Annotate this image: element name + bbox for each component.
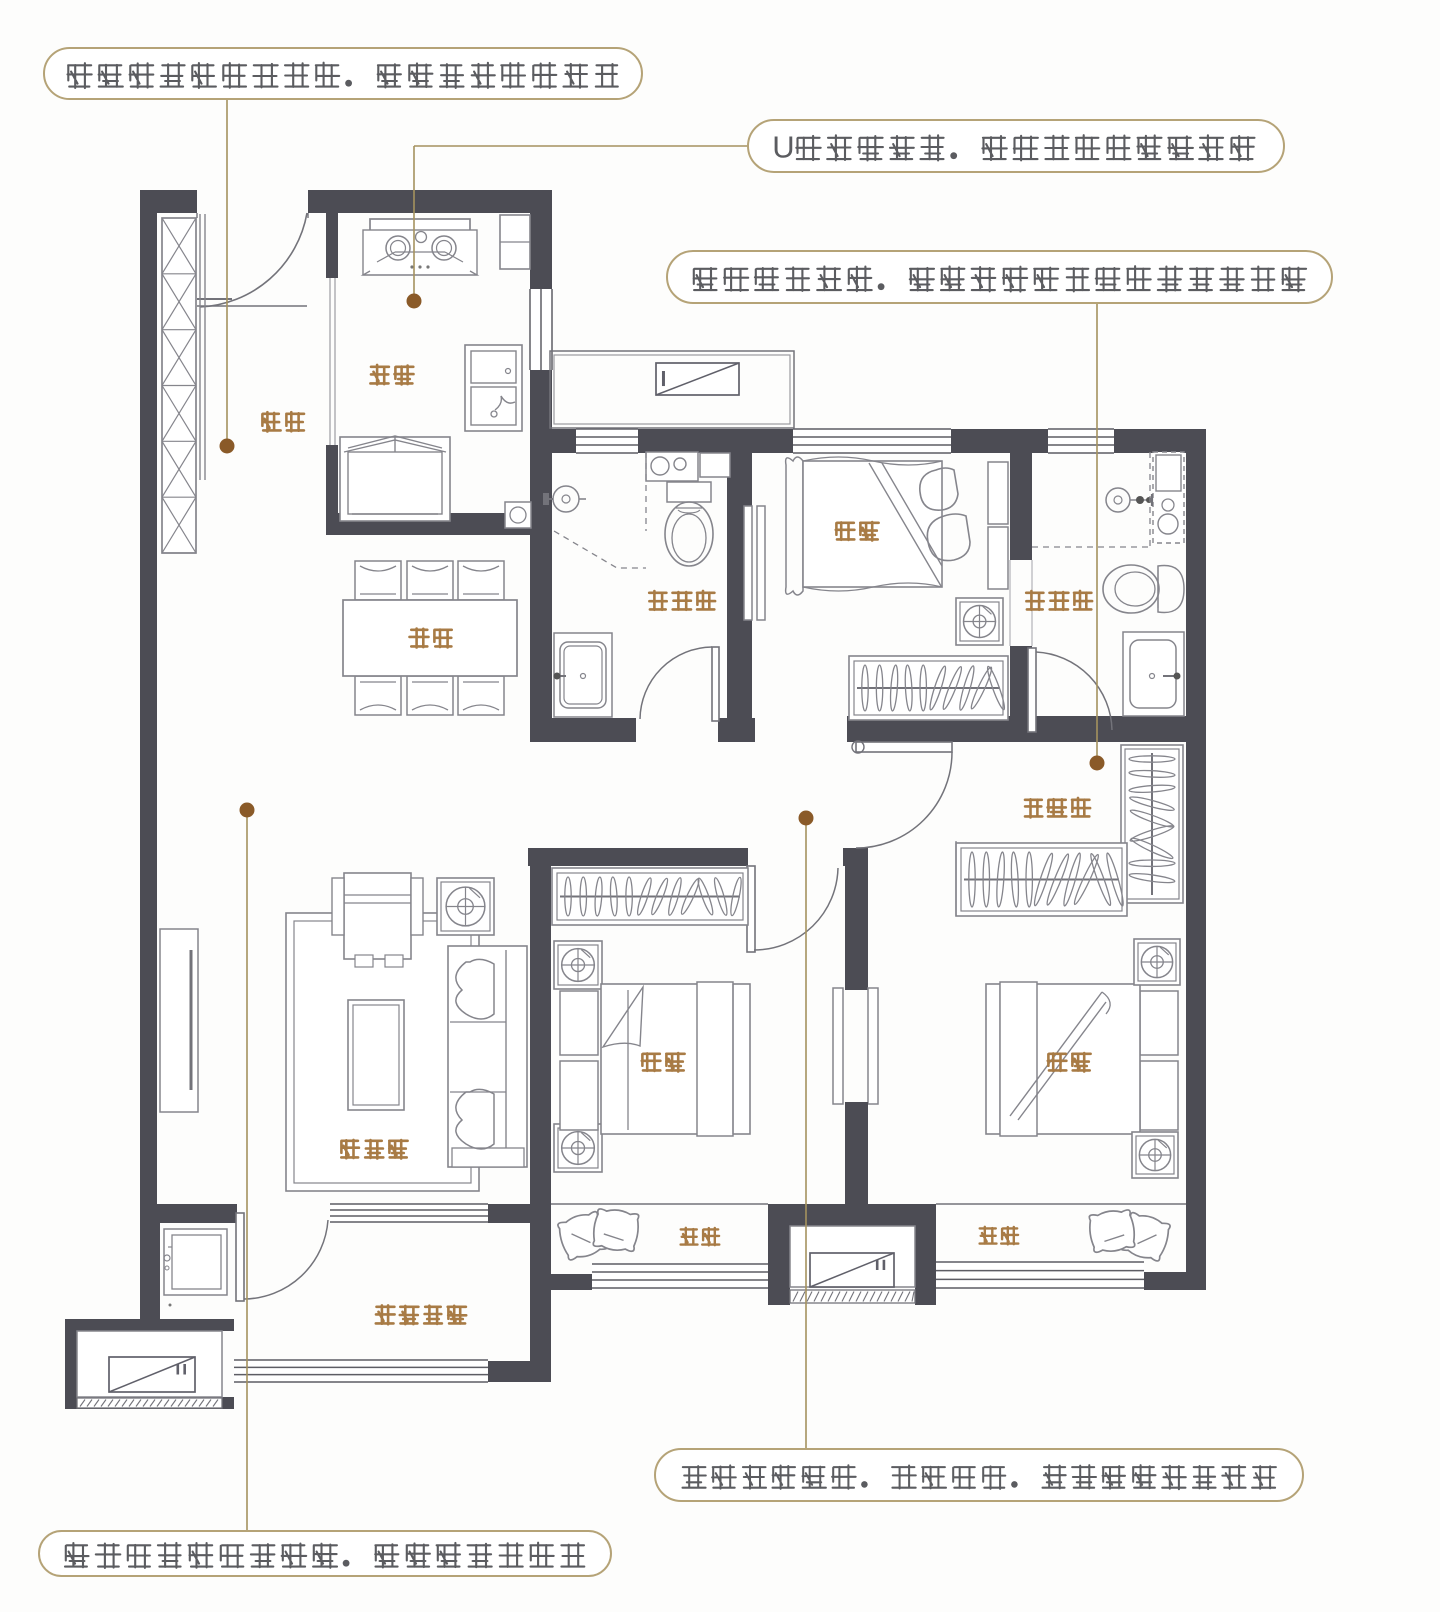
svg-text:U: U <box>772 130 794 165</box>
